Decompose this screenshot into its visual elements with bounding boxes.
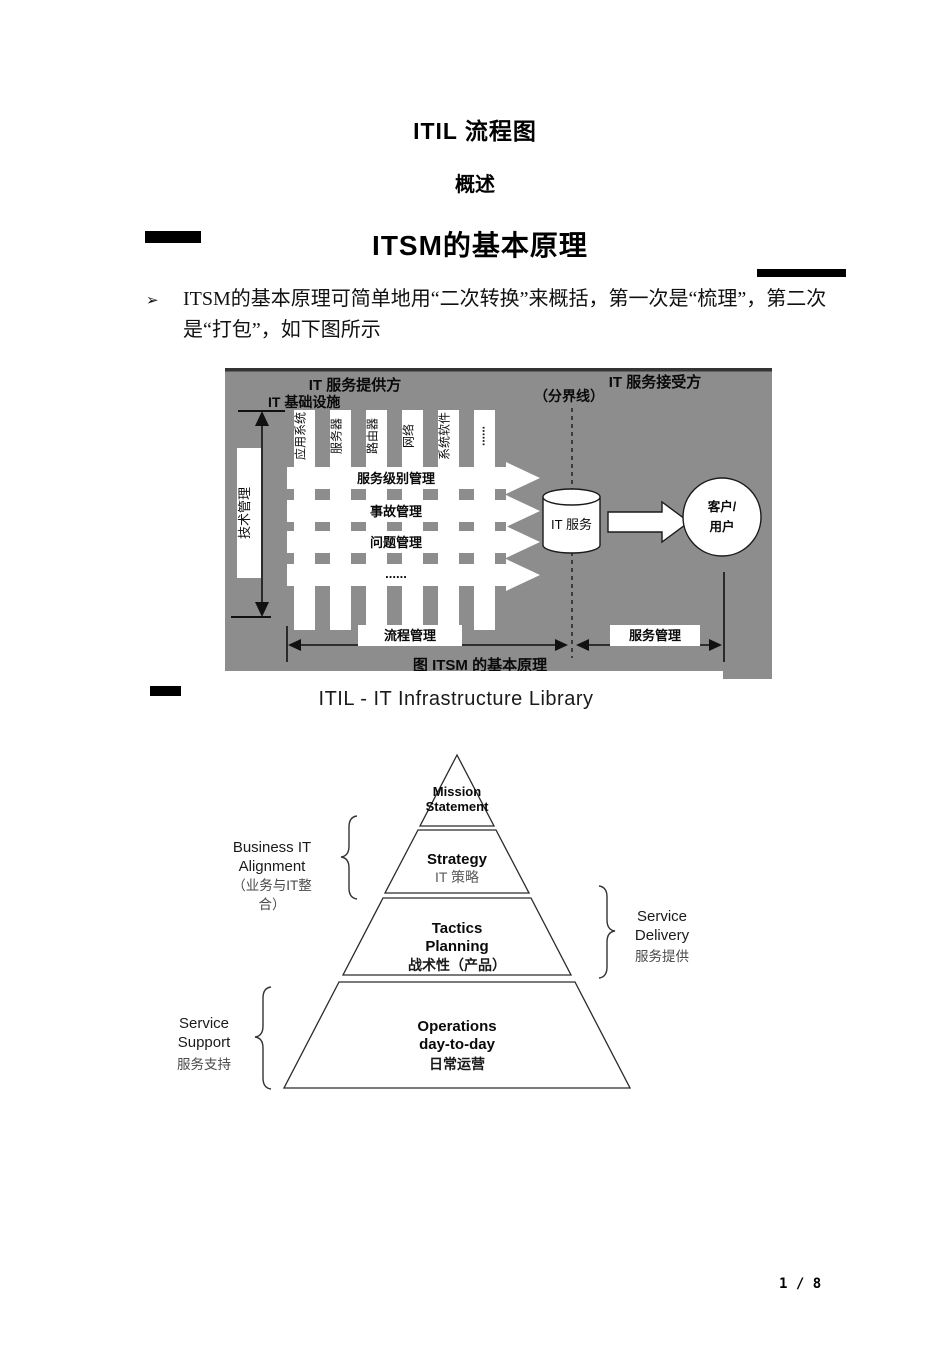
figure-top-border [225, 368, 772, 372]
caption-clip-patch [225, 671, 723, 679]
brace-left-bottom-icon [255, 987, 271, 1089]
infrastructure-label: IT 基础设施 [268, 394, 340, 410]
it-service-cylinder: IT 服务 [543, 489, 600, 553]
business-it-line2: Alignment [239, 858, 307, 875]
service-support-line2: Support [178, 1034, 231, 1051]
page-subtitle: 概述 [0, 168, 950, 197]
tier-tactics-line1: Tactics [432, 920, 483, 937]
business-it-line4: 合） [259, 897, 286, 912]
page-number: 1 / 8 [779, 1276, 821, 1292]
tier-operations-line2: day-to-day [419, 1036, 496, 1053]
section-heading: ITSM的基本原理 [0, 224, 950, 264]
service-support-line1: Service [179, 1015, 229, 1032]
process-arrow-label: ...... [385, 566, 407, 581]
business-it-line3: （业务与IT整 [232, 878, 312, 893]
tier-mission-line1: Mission [433, 784, 481, 799]
service-delivery-line1: Service [637, 908, 687, 925]
tier-strategy-line1: Strategy [427, 851, 488, 868]
tier-mission-line2: Statement [426, 799, 490, 814]
infra-column-label: 服务器 [329, 418, 344, 454]
document-page: ITIL 流程图 概述 ITSM的基本原理 ➢ ITSM的基本原理可简单地用“二… [0, 0, 950, 1345]
process-arrow-label: 事故管理 [370, 504, 422, 519]
service-mgmt-label: 服务管理 [629, 628, 681, 643]
customer-label-line2: 用户 [708, 519, 734, 534]
tier-operations-line3: 日常运营 [429, 1056, 485, 1072]
process-mgmt-label: 流程管理 [384, 628, 436, 643]
process-arrow-label: 问题管理 [370, 535, 422, 550]
service-support-line3: 服务支持 [177, 1057, 231, 1072]
provider-label: IT 服务提供方 [309, 376, 402, 394]
label-service-support: Service Support 服务支持 [177, 1015, 231, 1072]
customer-label-line1: 客户/ [707, 499, 737, 514]
label-business-it-alignment: Business IT Alignment （业务与IT整 合） [232, 839, 312, 912]
bullet-arrow-icon: ➢ [146, 291, 159, 309]
pyramid-figure: Mission Statement Strategy IT 策略 Tactics… [140, 740, 760, 1100]
brace-left-top-icon [341, 816, 357, 899]
tech-mgmt-label: 技术管理 [237, 487, 252, 539]
it-service-label: IT 服务 [551, 517, 592, 532]
infra-column-label: 网络 [401, 424, 416, 448]
process-arrow-label: 服务级别管理 [357, 471, 435, 486]
infra-column-label: 系统软件 [438, 412, 452, 460]
receiver-label: IT 服务接受方 [609, 373, 702, 391]
infra-column-label: 应用系统 [293, 412, 308, 460]
business-it-line1: Business IT [233, 839, 311, 856]
brace-right-icon [599, 886, 615, 978]
boundary-label: （分界线） [534, 388, 604, 404]
decor-bar-right [757, 269, 846, 277]
customer-circle: 客户/ 用户 [683, 478, 761, 556]
page-title: ITIL 流程图 [0, 112, 950, 146]
tier-tactics-line3: 战术性（产品） [408, 957, 506, 973]
label-service-delivery: Service Delivery 服务提供 [635, 908, 690, 964]
bullet-text: ITSM的基本原理可简单地用“二次转换”来概括，第一次是“梳理”，第二次是“打包… [183, 284, 836, 346]
pyramid-tier-operations [284, 982, 630, 1088]
tier-operations-line1: Operations [417, 1018, 496, 1035]
infra-column-label: ...... [474, 426, 488, 446]
itil-heading: ITIL - IT Infrastructure Library [140, 688, 772, 711]
service-delivery-line3: 服务提供 [635, 949, 689, 964]
tier-strategy-line2: IT 策略 [435, 869, 479, 885]
tier-tactics-line2: Planning [425, 938, 488, 955]
itsm-figure: IT 服务提供方 IT 服务接受方 IT 基础设施 （分界线） 技术管理 应用系… [225, 368, 772, 679]
infra-column-label: 路由器 [365, 418, 380, 454]
service-delivery-line2: Delivery [635, 927, 690, 944]
